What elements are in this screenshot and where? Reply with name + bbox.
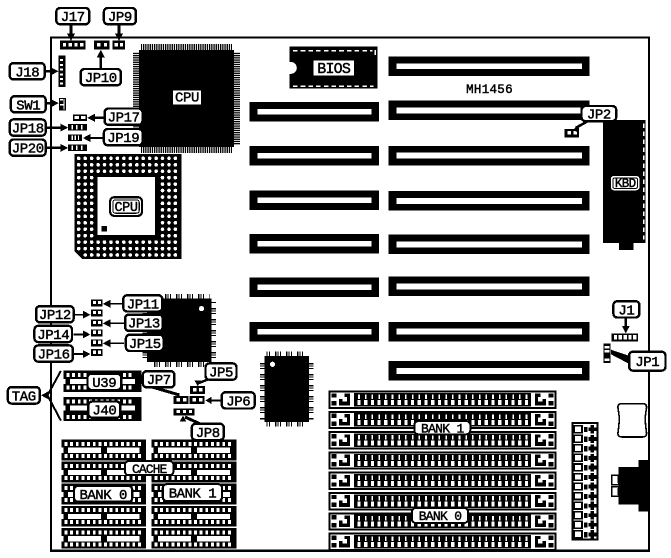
svg-text:JP14: JP14 bbox=[37, 328, 69, 344]
svg-text:JP19: JP19 bbox=[107, 131, 139, 147]
svg-text:J1: J1 bbox=[618, 303, 634, 319]
svg-text:CACHE: CACHE bbox=[132, 462, 168, 477]
svg-text:BANK 0: BANK 0 bbox=[419, 509, 462, 524]
svg-text:JP9: JP9 bbox=[108, 10, 132, 26]
svg-text:JP13: JP13 bbox=[128, 317, 160, 333]
svg-text:KBD: KBD bbox=[615, 177, 636, 191]
svg-text:BANK 1: BANK 1 bbox=[421, 421, 465, 436]
svg-text:JP5: JP5 bbox=[209, 366, 233, 382]
svg-text:JP15: JP15 bbox=[129, 337, 161, 353]
svg-text:SW1: SW1 bbox=[16, 98, 40, 114]
svg-text:JP16: JP16 bbox=[38, 348, 70, 364]
svg-text:JP1: JP1 bbox=[635, 355, 659, 371]
svg-text:JP6: JP6 bbox=[226, 394, 250, 410]
svg-text:J18: J18 bbox=[15, 65, 39, 81]
svg-text:JP7: JP7 bbox=[147, 373, 171, 389]
svg-text:BANK 0: BANK 0 bbox=[79, 488, 127, 504]
svg-text:J17: J17 bbox=[61, 10, 85, 26]
svg-text:CPU: CPU bbox=[175, 90, 199, 106]
svg-text:U39: U39 bbox=[92, 376, 116, 392]
svg-text:JP11: JP11 bbox=[127, 297, 159, 313]
svg-text:JP2: JP2 bbox=[587, 108, 611, 124]
svg-text:JP18: JP18 bbox=[12, 122, 44, 138]
svg-text:JP17: JP17 bbox=[108, 111, 140, 127]
svg-text:MH1456: MH1456 bbox=[466, 83, 513, 97]
svg-text:J40: J40 bbox=[92, 404, 116, 420]
svg-text:TAG: TAG bbox=[12, 389, 36, 405]
svg-text:CPU: CPU bbox=[114, 201, 137, 216]
svg-text:BANK 1: BANK 1 bbox=[169, 487, 217, 503]
svg-text:BIOS: BIOS bbox=[317, 61, 351, 78]
svg-text:JP8: JP8 bbox=[196, 426, 220, 442]
svg-text:JP10: JP10 bbox=[85, 71, 117, 87]
svg-text:JP12: JP12 bbox=[39, 308, 71, 324]
svg-text:JP20: JP20 bbox=[12, 142, 44, 158]
